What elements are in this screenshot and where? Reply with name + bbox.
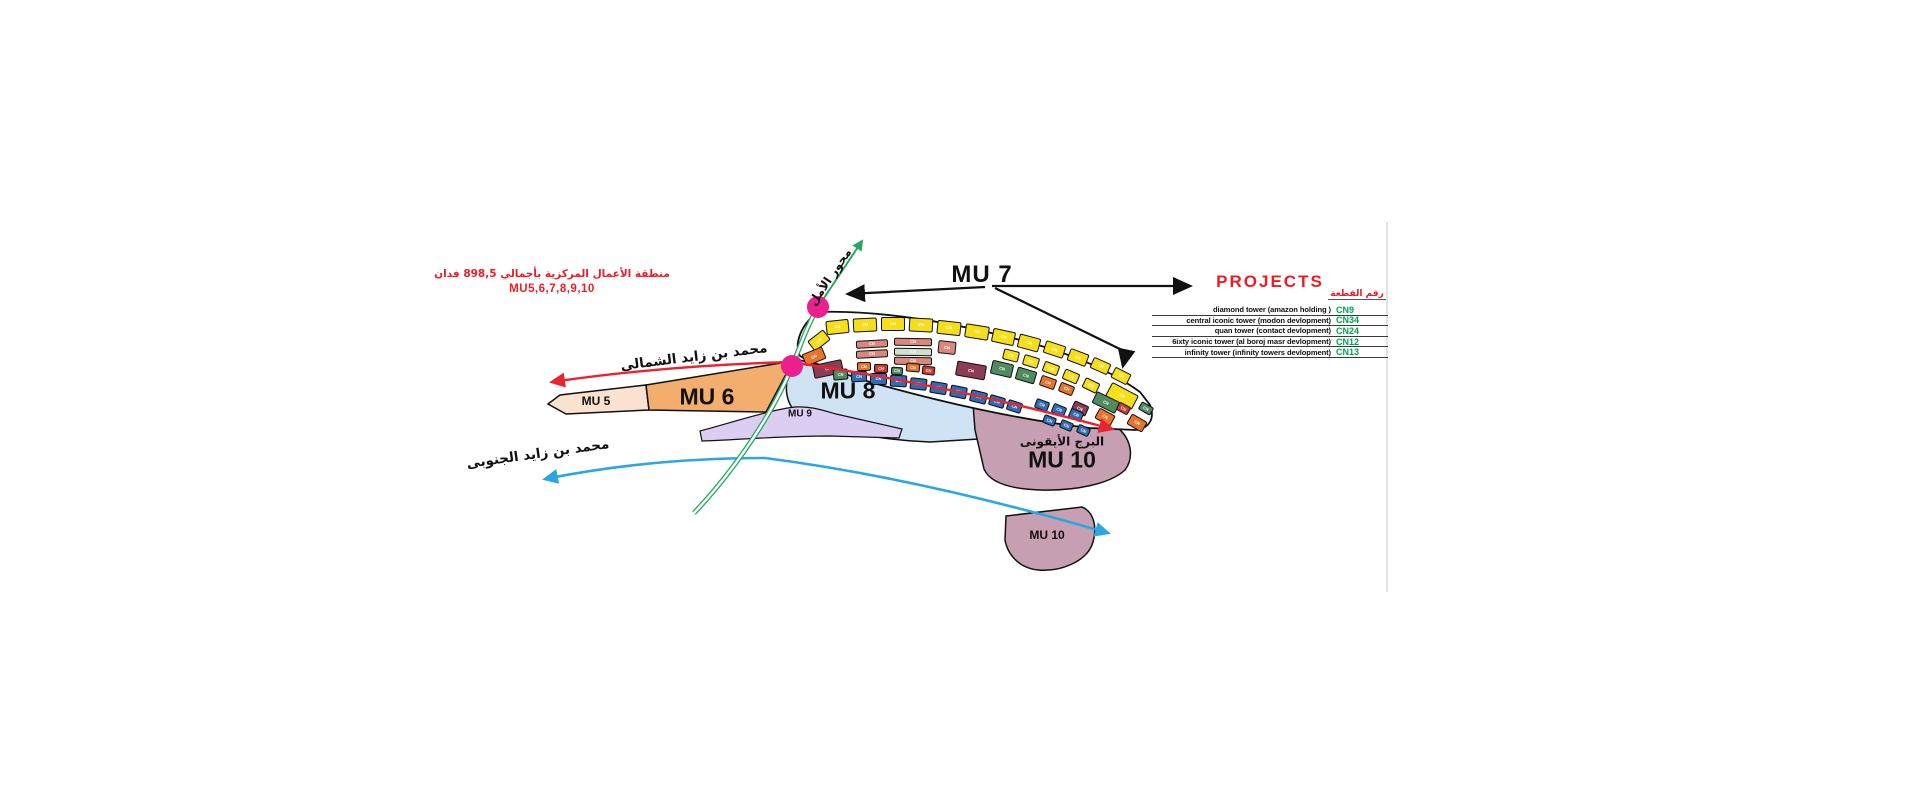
caption-mu-list: MU5,6,7,8,9,10 [434, 282, 670, 297]
project-code: CN9 [1336, 305, 1388, 315]
project-name: central iconic tower (modon devlopment) [1152, 316, 1336, 325]
mu10-en-label: MU 10 [1020, 449, 1104, 471]
area-caption: منطقة الأعمال المركزية بأجمالي 898,5 فدا… [434, 267, 670, 297]
project-name: diamond tower (amazon holding ) [1152, 305, 1336, 314]
mu10-south-zone-label: MU 10 [1029, 528, 1064, 542]
masterplan-map: CNCNCNCNCNCNCNCNCNCNCNCNCNCNCNCNCNCNCNCN… [0, 0, 1906, 800]
project-code: CN13 [1336, 347, 1388, 357]
project-code: CN34 [1336, 315, 1388, 325]
mu7-zone-label: MU 7 [951, 261, 1012, 289]
mu6-zone-label: MU 6 [680, 384, 735, 411]
projects-rows: diamond tower (amazon holding ) CN9 cent… [1152, 305, 1388, 358]
project-code: CN12 [1336, 337, 1388, 347]
table-row: 6ixty iconic tower (al boroj masr devlop… [1152, 337, 1388, 348]
project-name: 6ixty iconic tower (al boroj masr devlop… [1152, 337, 1336, 346]
table-row: central iconic tower (modon devlopment) … [1152, 316, 1388, 327]
map-overlay [0, 0, 1906, 800]
mu10-zone-label: البرج الأيقونى MU 10 [1020, 436, 1104, 471]
table-row: quan tower (contact devlopment) CN24 [1152, 326, 1388, 337]
caption-arabic: منطقة الأعمال المركزية بأجمالي 898,5 فدا… [434, 267, 670, 282]
table-row: diamond tower (amazon holding ) CN9 [1152, 305, 1388, 316]
table-row: infinity tower (infinity towers devlopme… [1152, 347, 1388, 358]
junction-marker-south [781, 355, 803, 377]
mu7-right-arrow [995, 288, 1126, 366]
mu9-zone-label: MU 9 [788, 409, 812, 420]
project-name: infinity tower (infinity towers devlopme… [1152, 348, 1336, 357]
project-code: CN24 [1336, 326, 1388, 336]
project-name: quan tower (contact devlopment) [1152, 326, 1336, 335]
projects-table: PROJECTS رقم القطعة diamond tower (amazo… [1152, 272, 1388, 358]
plot-number-column-header: رقم القطعة [1328, 289, 1386, 300]
mu8-zone-label: MU 8 [821, 378, 876, 405]
mu5-zone-label: MU 5 [582, 394, 611, 408]
